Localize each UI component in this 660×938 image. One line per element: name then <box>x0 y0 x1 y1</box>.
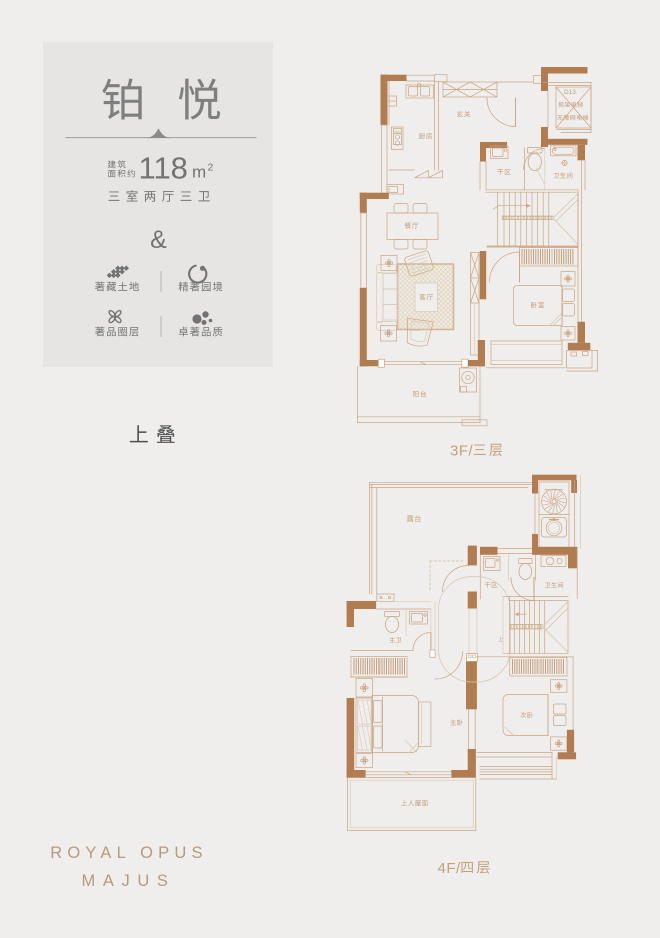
svg-text:m: m <box>192 163 206 182</box>
svg-text:3F/: 3F/ <box>450 443 474 460</box>
svg-text:MAJUS: MAJUS <box>82 872 176 890</box>
svg-text:4F/: 4F/ <box>438 860 462 877</box>
svg-text:&: & <box>150 226 167 254</box>
svg-text:ROYAL OPUS: ROYAL OPUS <box>50 844 207 862</box>
svg-text:118: 118 <box>139 151 188 186</box>
svg-text:2: 2 <box>208 162 214 174</box>
svg-text:D13: D13 <box>564 89 576 96</box>
